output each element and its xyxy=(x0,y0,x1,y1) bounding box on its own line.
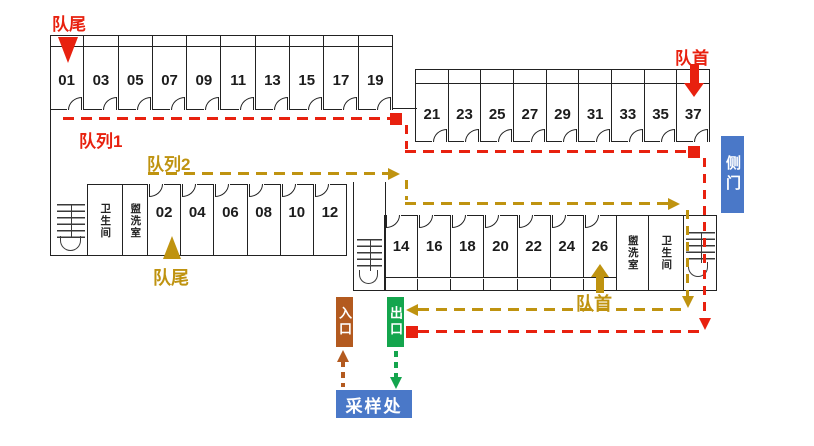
floor-plan-diagram: 01 03 05 07 xyxy=(0,0,814,446)
door-arc-icon xyxy=(149,184,163,197)
room-cell: 08 xyxy=(248,184,281,243)
wall xyxy=(600,215,616,216)
arrowhead-icon xyxy=(406,326,418,338)
room-number: 12 xyxy=(314,204,346,221)
room-number: 19 xyxy=(359,72,392,89)
room-number: 27 xyxy=(514,106,546,123)
room-cell: 05 xyxy=(119,36,153,110)
wall xyxy=(434,215,450,216)
door-arc-icon xyxy=(274,97,288,110)
wall xyxy=(645,83,677,84)
wall xyxy=(677,141,693,142)
room-cell: 22 xyxy=(518,215,551,277)
door-arc-icon xyxy=(386,215,400,228)
exit-path xyxy=(394,351,398,378)
washroom-label: 盥洗室 xyxy=(627,235,638,271)
room-row-top-left: 01 03 05 07 xyxy=(50,35,393,110)
wing-bottom-right: 14 16 18 20 xyxy=(384,215,717,291)
room-number: 04 xyxy=(181,204,213,221)
door-arc-icon xyxy=(498,129,512,142)
door-arc-icon xyxy=(308,97,322,110)
queue-head-label: 队首 xyxy=(675,44,709,69)
queue-head-label: 队首 xyxy=(576,290,612,316)
room-cell: 33 xyxy=(612,70,645,142)
wall xyxy=(547,141,563,142)
room-cell: 16 xyxy=(418,215,451,277)
queue-tail-marker-icon xyxy=(163,236,181,259)
room-cell: 09 xyxy=(187,36,221,110)
room-number: 02 xyxy=(148,204,180,221)
queue1-label: 队列1 xyxy=(79,127,122,152)
door-arc-icon xyxy=(182,184,196,197)
door-arc-icon xyxy=(596,129,610,142)
door-arc-icon xyxy=(531,129,545,142)
room-cell: 10 xyxy=(281,184,314,243)
door-arc-icon xyxy=(433,129,447,142)
side-door-label: 侧门 xyxy=(725,155,740,195)
wall xyxy=(645,141,661,142)
room-number: 18 xyxy=(451,238,483,255)
room-cell: 02 xyxy=(148,184,181,243)
door-arc-icon xyxy=(629,129,643,142)
door-arc-icon xyxy=(585,215,599,228)
queue2-path xyxy=(686,210,689,296)
wall xyxy=(567,215,583,216)
wall xyxy=(449,83,481,84)
exit-label: 出口 xyxy=(389,306,402,338)
wall xyxy=(416,141,432,142)
door-arc-icon xyxy=(465,129,479,142)
wall xyxy=(500,215,516,216)
wall xyxy=(264,184,280,185)
sampling-station-sign: 采样处 xyxy=(336,390,412,418)
room-number: 03 xyxy=(84,72,117,89)
entrance-label: 入口 xyxy=(338,306,351,338)
wall xyxy=(248,243,281,255)
wall xyxy=(467,215,483,216)
room-number: 17 xyxy=(324,72,357,89)
wall xyxy=(230,184,246,185)
bathroom-room: 卫生间 xyxy=(648,215,683,290)
wall xyxy=(290,109,307,110)
wall xyxy=(484,279,517,290)
wall xyxy=(153,46,186,47)
room-row-bottom-right: 14 16 18 20 xyxy=(385,215,616,278)
wall xyxy=(330,184,346,185)
door-arc-icon xyxy=(68,97,82,110)
arrowhead-icon xyxy=(688,146,700,158)
washroom-label: 盥洗室 xyxy=(130,203,141,239)
room-cell: 17 xyxy=(324,36,358,110)
wall xyxy=(359,46,392,47)
door-arc-icon xyxy=(343,97,357,110)
queue-tail-label: 队尾 xyxy=(52,10,86,35)
entrance-sign: 入口 xyxy=(336,297,353,347)
arrowhead-icon xyxy=(390,113,402,125)
wall xyxy=(385,279,418,290)
room-number: 20 xyxy=(484,238,516,255)
room-cell: 13 xyxy=(256,36,290,110)
room-number: 26 xyxy=(584,238,616,255)
wall xyxy=(187,109,204,110)
room-cell: 03 xyxy=(84,36,118,110)
wall xyxy=(197,184,213,185)
wall xyxy=(579,83,611,84)
wall xyxy=(481,141,497,142)
balcony-strip-right xyxy=(385,279,616,290)
room-number: 22 xyxy=(518,238,550,255)
arrowhead-icon xyxy=(682,296,694,308)
exit-sign: 出口 xyxy=(387,297,404,347)
room-cell: 14 xyxy=(385,215,418,277)
queue1-path xyxy=(405,150,688,153)
door-arc-icon xyxy=(519,215,533,228)
wall xyxy=(256,46,289,47)
queue-head-arrow-icon xyxy=(684,83,704,97)
room-cell: 31 xyxy=(579,70,612,142)
room-number: 08 xyxy=(248,204,280,221)
wall xyxy=(324,46,357,47)
wall xyxy=(449,141,465,142)
balcony-strip-left xyxy=(51,243,347,256)
queue2-label: 队列2 xyxy=(147,150,190,175)
room-number: 31 xyxy=(579,106,611,123)
room-cell: 23 xyxy=(449,70,482,142)
room-number: 01 xyxy=(50,72,83,89)
room-cell: 11 xyxy=(221,36,255,110)
wall xyxy=(153,109,170,110)
entrance-path xyxy=(341,361,345,387)
door-arc-icon xyxy=(103,97,117,110)
queue1-path xyxy=(63,117,390,120)
wall xyxy=(119,46,152,47)
room-number: 09 xyxy=(187,72,220,89)
room-cell: 04 xyxy=(181,184,214,243)
wall xyxy=(256,109,273,110)
door-arc-icon xyxy=(205,97,219,110)
room-cell: 24 xyxy=(551,215,584,277)
wall xyxy=(518,279,551,290)
wall xyxy=(514,141,530,142)
wall xyxy=(534,215,550,216)
wall xyxy=(612,141,628,142)
room-number: 15 xyxy=(290,72,323,89)
room-cell: 12 xyxy=(314,184,346,243)
wall xyxy=(290,46,323,47)
wall xyxy=(297,184,313,185)
room-cell: 29 xyxy=(547,70,580,142)
wall xyxy=(84,109,101,110)
room-number: 13 xyxy=(256,72,289,89)
room-number: 07 xyxy=(153,72,186,89)
room-number: 23 xyxy=(449,106,481,123)
wall xyxy=(547,83,579,84)
wall xyxy=(401,215,417,216)
side-door-sign: 侧门 xyxy=(721,136,744,213)
room-number: 10 xyxy=(281,204,313,221)
arrowhead-icon xyxy=(699,318,711,330)
door-arc-icon xyxy=(315,184,329,197)
room-number: 16 xyxy=(418,238,450,255)
door-arc-icon xyxy=(694,129,708,142)
wall xyxy=(187,46,220,47)
arrowhead-icon xyxy=(388,168,400,180)
room-number: 24 xyxy=(551,238,583,255)
wall xyxy=(119,109,136,110)
room-cell: 15 xyxy=(290,36,324,110)
wall xyxy=(416,83,448,84)
arrowhead-icon xyxy=(668,198,680,210)
wall xyxy=(359,109,376,110)
room-cell: 19 xyxy=(359,36,392,110)
bathroom-label: 卫生间 xyxy=(100,203,111,239)
arrowhead-icon xyxy=(406,304,418,316)
room-cell: 25 xyxy=(481,70,514,142)
queue2-path xyxy=(405,180,408,200)
door-arc-icon xyxy=(377,97,391,110)
wall xyxy=(481,83,513,84)
bathroom-label: 卫生间 xyxy=(661,235,672,271)
room-row-top-right: 21 23 25 27 xyxy=(415,69,710,142)
wall xyxy=(418,279,451,290)
stairwell-middle xyxy=(353,182,386,291)
room-number: 33 xyxy=(612,106,644,123)
stairs-icon xyxy=(56,198,86,255)
queue1-path xyxy=(703,158,706,318)
wall xyxy=(324,109,341,110)
room-number: 06 xyxy=(214,204,246,221)
wall xyxy=(579,141,595,142)
door-arc-icon xyxy=(249,184,263,197)
room-cell: 07 xyxy=(153,36,187,110)
room-cell: 21 xyxy=(416,70,449,142)
room-number: 29 xyxy=(547,106,579,123)
door-arc-icon xyxy=(552,215,566,228)
washroom-room: 盥洗室 xyxy=(616,215,648,290)
door-arc-icon xyxy=(452,215,466,228)
wall xyxy=(612,83,644,84)
wall xyxy=(164,184,180,185)
sampling-station-label: 采样处 xyxy=(346,392,403,417)
queue1-path xyxy=(418,330,705,333)
wall xyxy=(221,46,254,47)
room-cell: 27 xyxy=(514,70,547,142)
room-row-mid-left: 02 04 06 08 10 xyxy=(148,184,347,243)
door-arc-icon xyxy=(171,97,185,110)
queue1-path xyxy=(405,125,408,149)
door-arc-icon xyxy=(419,215,433,228)
wall xyxy=(281,243,314,255)
room-number: 21 xyxy=(416,106,448,123)
door-arc-icon xyxy=(137,97,151,110)
room-number: 05 xyxy=(119,72,152,89)
room-number: 37 xyxy=(677,106,709,123)
door-arc-icon xyxy=(485,215,499,228)
room-number: 11 xyxy=(221,72,254,89)
wall xyxy=(84,46,117,47)
room-number: 14 xyxy=(385,238,417,255)
wall xyxy=(551,279,584,290)
room-number: 35 xyxy=(645,106,677,123)
queue-tail-marker-icon xyxy=(58,37,78,63)
wall xyxy=(221,109,238,110)
wall xyxy=(314,243,346,255)
room-number: 25 xyxy=(481,106,513,123)
door-arc-icon xyxy=(563,129,577,142)
door-arc-icon xyxy=(215,184,229,197)
wall xyxy=(214,243,247,255)
wall xyxy=(181,243,214,255)
door-arc-icon xyxy=(661,129,675,142)
wall xyxy=(514,83,546,84)
door-arc-icon xyxy=(240,97,254,110)
room-cell: 20 xyxy=(484,215,517,277)
arrowhead-icon xyxy=(390,377,402,389)
wall xyxy=(393,108,417,109)
wall xyxy=(50,109,67,110)
door-arc-icon xyxy=(282,184,296,197)
queue2-path xyxy=(405,202,668,205)
room-cell: 35 xyxy=(645,70,678,142)
room-cell: 06 xyxy=(214,184,247,243)
queue2-path xyxy=(418,308,686,311)
queue-tail-label: 队尾 xyxy=(153,264,189,290)
room-cell: 18 xyxy=(451,215,484,277)
wall xyxy=(451,279,484,290)
